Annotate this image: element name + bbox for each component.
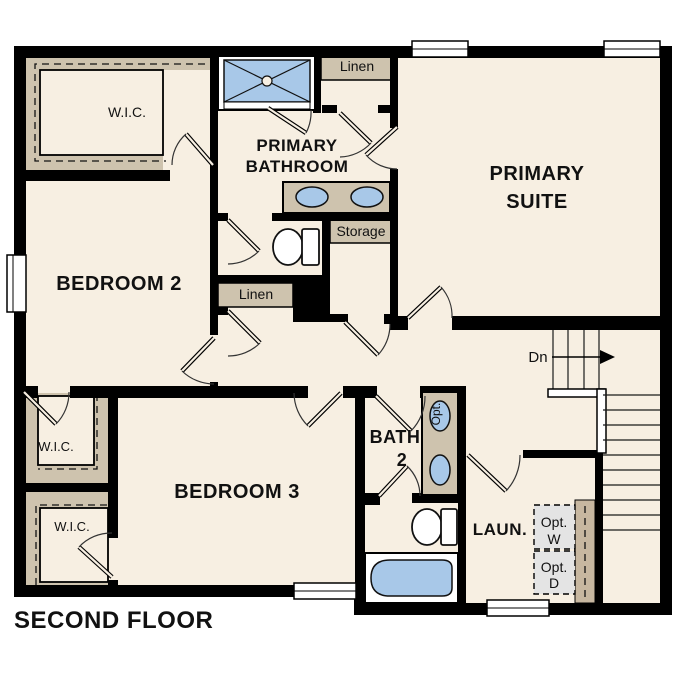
primary-bathroom-label: BATHROOM bbox=[246, 157, 349, 176]
primary-bathroom-label: PRIMARY bbox=[256, 136, 337, 155]
window-top-1 bbox=[412, 41, 468, 57]
window-laundry bbox=[487, 600, 549, 616]
bedroom2-label: BEDROOM 2 bbox=[56, 273, 182, 295]
toilet-icon bbox=[412, 509, 457, 545]
laundry-label: LAUN. bbox=[473, 520, 527, 539]
window-bedroom3 bbox=[294, 583, 356, 599]
sink-icon bbox=[351, 187, 383, 207]
shower bbox=[218, 56, 315, 110]
window-top-2 bbox=[604, 41, 660, 57]
sink-icon bbox=[430, 455, 450, 485]
primary-suite-label: SUITE bbox=[506, 191, 567, 213]
bath2-label: 2 bbox=[397, 450, 408, 470]
primary-vanity bbox=[283, 182, 390, 213]
sink-icon bbox=[296, 187, 328, 207]
optional-washer-label: Opt. bbox=[541, 514, 567, 530]
wic-bottom-label: W.I.C. bbox=[54, 519, 89, 534]
optional-dryer-label: D bbox=[549, 575, 559, 591]
floor-plan: W.I.C. PRIMARY BATHROOM Linen PRIMARY SU… bbox=[0, 0, 687, 687]
optional-sink-label: Opt. bbox=[429, 403, 443, 426]
floor-title: SECOND FLOOR bbox=[14, 607, 213, 634]
primary-suite-label: PRIMARY bbox=[490, 163, 585, 185]
shower-drain-icon bbox=[262, 76, 272, 86]
optional-dryer-label: Opt. bbox=[541, 559, 567, 575]
optional-washer-label: W bbox=[547, 531, 561, 547]
linen-middle-label: Linen bbox=[239, 286, 273, 302]
window-bedroom2 bbox=[7, 255, 26, 312]
toilet-icon bbox=[273, 229, 319, 265]
stair-railing bbox=[597, 389, 606, 453]
bathtub-icon bbox=[365, 553, 458, 603]
wic-top-left-label: W.I.C. bbox=[108, 104, 146, 120]
storage-label: Storage bbox=[336, 223, 385, 239]
wic-middle-label: W.I.C. bbox=[38, 439, 73, 454]
stairs-down-label: Dn bbox=[528, 349, 547, 366]
bedroom3-label: BEDROOM 3 bbox=[174, 481, 300, 503]
bath2-label: BATH bbox=[370, 427, 421, 447]
linen-top-label: Linen bbox=[340, 58, 374, 74]
